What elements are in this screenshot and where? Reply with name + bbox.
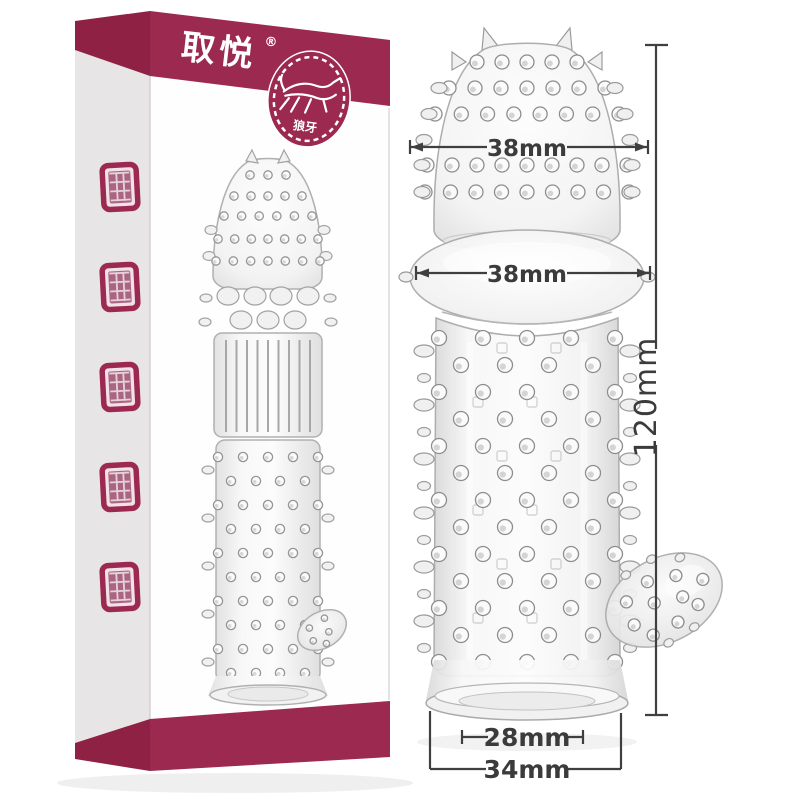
stud-core xyxy=(522,552,528,558)
box-shadow xyxy=(57,773,413,793)
stud-core xyxy=(588,525,594,531)
stud-core xyxy=(522,390,528,396)
stud-core xyxy=(290,552,294,556)
stud-core xyxy=(547,60,553,66)
seal-stamp-face xyxy=(108,170,132,203)
stud-core xyxy=(471,190,477,196)
seal-stamp xyxy=(102,264,138,310)
stud-core xyxy=(248,238,252,242)
edge-nub xyxy=(399,272,413,282)
stud-core xyxy=(588,417,594,423)
seal-stamp xyxy=(102,464,138,510)
stud-core xyxy=(478,444,484,450)
stud-core xyxy=(228,576,232,580)
edge-nub xyxy=(617,109,633,120)
edge-nub xyxy=(414,453,434,465)
stud-core xyxy=(522,190,528,196)
stud-core xyxy=(434,606,440,612)
seal-stamp xyxy=(102,164,138,210)
edge-nub xyxy=(205,226,217,235)
stud-core xyxy=(213,260,217,264)
stud-core xyxy=(248,195,252,199)
edge-nub xyxy=(202,610,214,618)
stud-core xyxy=(434,336,440,342)
stud-core xyxy=(478,552,484,558)
seal-stamp-face xyxy=(108,570,132,603)
stud-core xyxy=(497,60,503,66)
edge-nub xyxy=(322,466,334,474)
edge-nub xyxy=(414,187,430,198)
stud-core xyxy=(544,525,550,531)
edge-nub xyxy=(418,482,431,491)
stud-core xyxy=(302,528,306,532)
stud-core xyxy=(317,260,321,264)
stud-core xyxy=(265,456,269,460)
stud-core xyxy=(215,600,219,604)
edge-nub xyxy=(414,615,434,627)
stud-core xyxy=(600,86,606,92)
stud-core xyxy=(247,174,251,178)
stud-core xyxy=(434,498,440,504)
stud-core xyxy=(290,648,294,652)
stud-core xyxy=(456,579,462,585)
stud-core xyxy=(434,444,440,450)
stud-core xyxy=(544,633,550,639)
edge-nub xyxy=(418,428,431,437)
stud-core xyxy=(547,190,553,196)
stud-core xyxy=(215,648,219,652)
edge-nub xyxy=(624,187,640,198)
stud-core xyxy=(574,86,580,92)
registered-mark: ® xyxy=(264,34,279,50)
stud-core xyxy=(434,552,440,558)
stud-core xyxy=(456,471,462,477)
stud-core xyxy=(535,112,541,118)
stud-core xyxy=(472,60,478,66)
stud-core xyxy=(456,525,462,531)
stud-core xyxy=(277,576,281,580)
stud-core xyxy=(598,190,604,196)
stud-core xyxy=(253,480,257,484)
stud-core xyxy=(544,579,550,585)
stud-core xyxy=(456,112,462,118)
stud-core xyxy=(588,633,594,639)
stud-core xyxy=(315,552,319,556)
stud-core xyxy=(566,606,572,612)
stud-core xyxy=(315,504,319,508)
edge-nub xyxy=(620,507,640,519)
stud-core xyxy=(456,417,462,423)
edge-nub xyxy=(202,562,214,570)
stud-core xyxy=(610,444,616,450)
stud-core xyxy=(610,498,616,504)
stud-core xyxy=(315,238,319,242)
edge-nub xyxy=(202,658,214,666)
stud-core xyxy=(265,174,269,178)
stud-core xyxy=(240,600,244,604)
stud-core xyxy=(544,363,550,369)
stud-core xyxy=(588,579,594,585)
edge-nub xyxy=(624,482,637,491)
stud-core xyxy=(228,624,232,628)
stud-core xyxy=(291,215,295,219)
stud-core xyxy=(277,480,281,484)
stud-core xyxy=(300,260,304,264)
stud-core xyxy=(299,195,303,199)
edge-nub xyxy=(322,562,334,570)
stud-core xyxy=(253,624,257,628)
stud-core xyxy=(434,390,440,396)
stud-core xyxy=(470,86,476,92)
stud-core xyxy=(500,579,506,585)
stud-core xyxy=(302,672,306,676)
edge-nub xyxy=(416,135,432,146)
stud-core xyxy=(566,498,572,504)
stud-core xyxy=(277,672,281,676)
seal-stamp-face xyxy=(108,470,132,503)
stud-core xyxy=(240,456,244,460)
edge-nub xyxy=(624,536,637,545)
stud-core xyxy=(239,215,243,219)
scene-canvas: 取悦 ® 狼牙 xyxy=(0,0,800,800)
stud-core xyxy=(265,552,269,556)
stud-core xyxy=(497,163,503,169)
stud-core xyxy=(231,195,235,199)
packaging-box: 取悦 ® 狼牙 xyxy=(57,11,413,793)
stud-core xyxy=(315,600,319,604)
stud-core xyxy=(610,390,616,396)
stud-core xyxy=(548,86,554,92)
stud-core xyxy=(566,444,572,450)
stud-core xyxy=(248,260,252,264)
stud-core xyxy=(253,576,257,580)
stud-core xyxy=(500,525,506,531)
edge-nub xyxy=(418,536,431,545)
edge-nub xyxy=(418,644,431,653)
product-listing-image: 取悦 ® 狼牙 xyxy=(0,0,800,800)
stud-core xyxy=(315,456,319,460)
stud-core xyxy=(456,363,462,369)
seal-stamp-face xyxy=(108,270,132,303)
stud-core xyxy=(290,600,294,604)
stud-core xyxy=(309,215,313,219)
stud-core xyxy=(228,528,232,532)
stud-core xyxy=(265,260,269,264)
stud-core xyxy=(283,174,287,178)
stud-core xyxy=(572,60,578,66)
stud-core xyxy=(597,163,603,169)
stud-core xyxy=(478,498,484,504)
stud-core xyxy=(215,552,219,556)
stud-core xyxy=(522,163,528,169)
stud-core xyxy=(500,363,506,369)
stud-core xyxy=(447,163,453,169)
base-inner-label: 28mm xyxy=(484,723,571,752)
stud-core xyxy=(544,417,550,423)
edge-nub xyxy=(322,658,334,666)
stud-core xyxy=(274,215,278,219)
stud-core xyxy=(573,190,579,196)
stud-core xyxy=(522,60,528,66)
stud-core xyxy=(500,633,506,639)
stud-core xyxy=(240,648,244,652)
stud-core xyxy=(483,112,489,118)
stud-core xyxy=(500,471,506,477)
seal-stamp xyxy=(102,564,138,610)
edge-nub xyxy=(431,83,447,94)
stud-core xyxy=(472,163,478,169)
edge-nub xyxy=(414,399,434,411)
stud-core xyxy=(445,190,451,196)
stud-core xyxy=(522,444,528,450)
edge-nub xyxy=(418,374,431,383)
stud-core xyxy=(265,195,269,199)
stud-core xyxy=(572,163,578,169)
stud-core xyxy=(522,86,528,92)
bulb-width-label: 38mm xyxy=(487,262,567,288)
stud-core xyxy=(215,456,219,460)
stud-core xyxy=(610,552,616,558)
stud-core xyxy=(588,471,594,477)
stud-core xyxy=(265,600,269,604)
product-photo xyxy=(399,28,739,751)
stud-core xyxy=(547,163,553,169)
edge-nub xyxy=(322,514,334,522)
product-base xyxy=(426,660,628,720)
stud-core xyxy=(253,528,257,532)
edge-nub xyxy=(202,514,214,522)
stud-core xyxy=(265,238,269,242)
stud-core xyxy=(290,456,294,460)
stud-core xyxy=(253,672,257,676)
length-label: 120mm xyxy=(629,337,664,458)
stud-core xyxy=(256,215,260,219)
stud-core xyxy=(277,624,281,628)
stud-core xyxy=(215,504,219,508)
edge-nub xyxy=(414,345,434,357)
stud-core xyxy=(221,215,225,219)
stud-core xyxy=(610,336,616,342)
stud-core xyxy=(302,480,306,484)
edge-nub xyxy=(421,109,437,120)
stud-core xyxy=(522,336,528,342)
seal-stamp-face xyxy=(108,370,132,403)
edge-nub xyxy=(414,507,434,519)
stud-core xyxy=(265,504,269,508)
stud-core xyxy=(500,417,506,423)
stud-core xyxy=(478,336,484,342)
stud-core xyxy=(228,480,232,484)
stud-core xyxy=(298,238,302,242)
edge-nub xyxy=(607,83,623,94)
stud-core xyxy=(522,606,528,612)
stud-core xyxy=(478,606,484,612)
edge-nub xyxy=(414,561,434,573)
head-width-label: 38mm xyxy=(487,136,567,162)
seal-stamp xyxy=(102,364,138,410)
stud-core xyxy=(302,576,306,580)
stud-core xyxy=(566,552,572,558)
stud-core xyxy=(232,238,236,242)
edge-nub xyxy=(418,590,431,599)
stud-core xyxy=(290,504,294,508)
stud-core xyxy=(265,648,269,652)
stud-core xyxy=(240,504,244,508)
stud-core xyxy=(215,238,219,242)
stud-core xyxy=(277,528,281,532)
stud-core xyxy=(588,363,594,369)
stud-core xyxy=(588,112,594,118)
edge-nub xyxy=(414,160,430,171)
stud-core xyxy=(456,633,462,639)
edge-nub xyxy=(318,226,330,235)
stud-core xyxy=(544,471,550,477)
stud-core xyxy=(509,112,515,118)
edge-nub xyxy=(624,160,640,171)
stud-core xyxy=(282,238,286,242)
stud-core xyxy=(566,390,572,396)
stud-core xyxy=(496,86,502,92)
stud-core xyxy=(566,336,572,342)
stud-core xyxy=(282,195,286,199)
stud-core xyxy=(230,260,234,264)
edge-nub xyxy=(202,466,214,474)
stud-core xyxy=(228,672,232,676)
brand-name: 取悦 xyxy=(179,27,259,75)
stud-core xyxy=(561,112,567,118)
stud-core xyxy=(282,260,286,264)
stud-core xyxy=(240,552,244,556)
base-outer-label: 34mm xyxy=(484,755,571,784)
mini-base-opening xyxy=(228,687,308,701)
stud-core xyxy=(522,498,528,504)
stud-core xyxy=(496,190,502,196)
stud-core xyxy=(478,390,484,396)
